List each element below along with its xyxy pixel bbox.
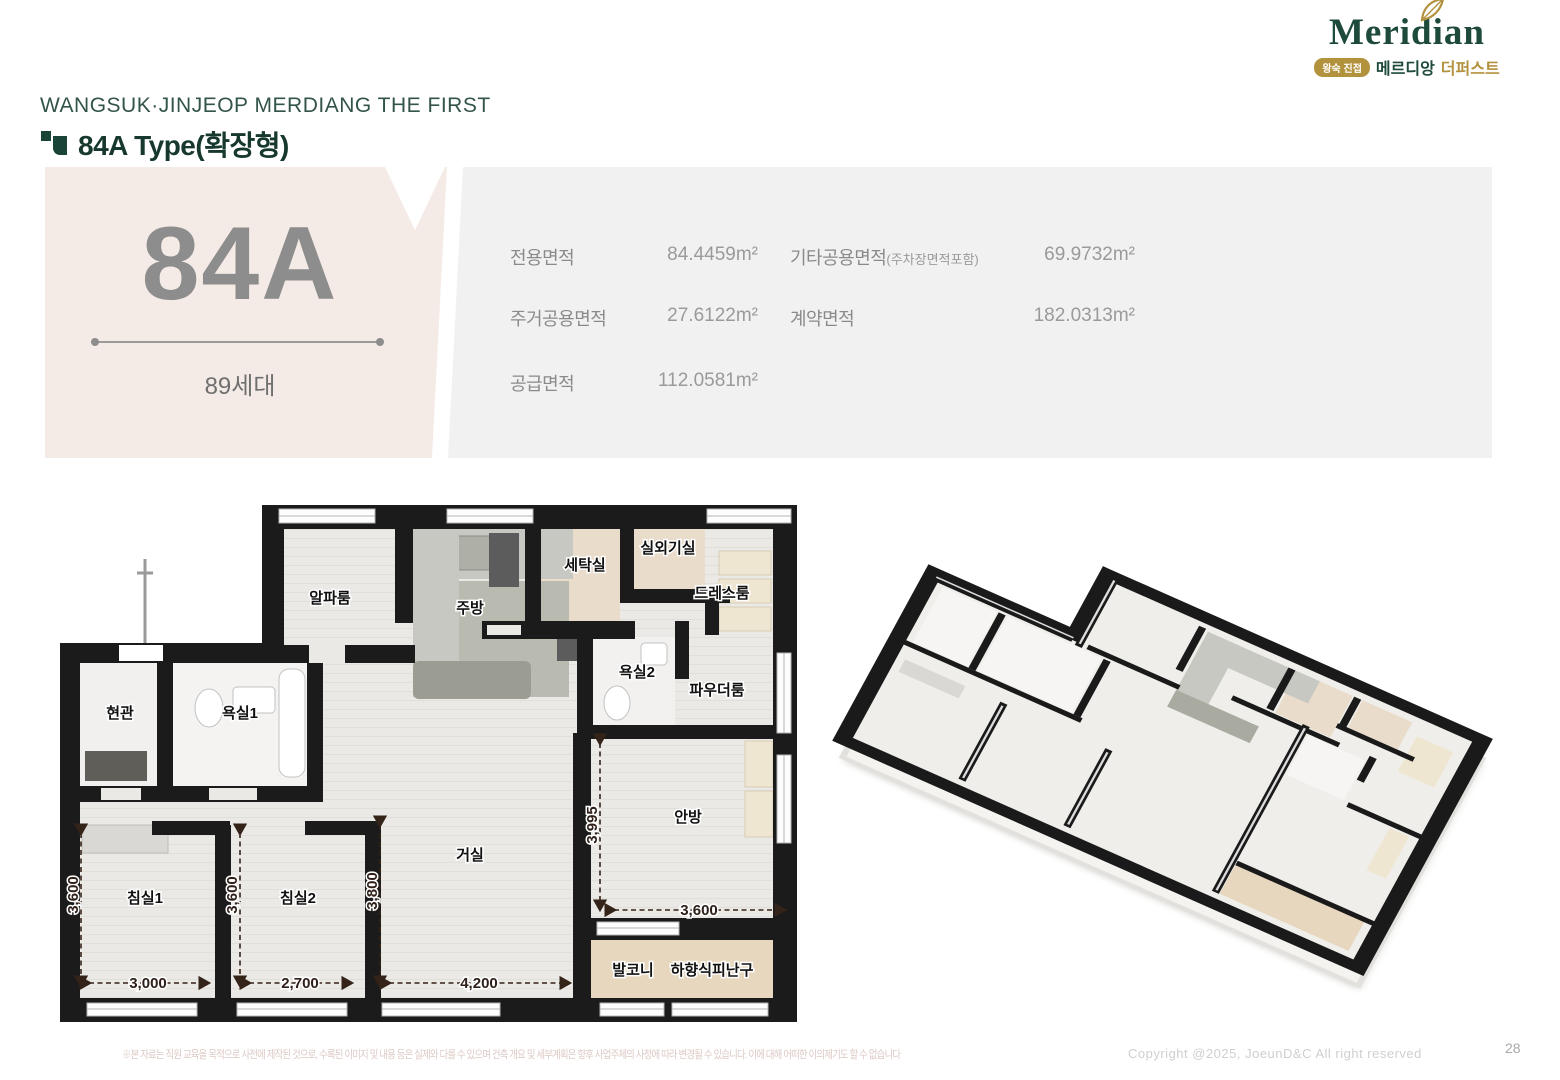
divider-rule <box>95 341 380 343</box>
area-label: 주거공용면적 <box>510 305 606 331</box>
dim-master-width: 3,600 <box>680 902 718 919</box>
floorplan-3d <box>805 480 1525 1055</box>
area-value: 69.9732m² <box>1044 244 1135 266</box>
room-label-entrance: 현관 <box>106 705 134 722</box>
kitchen-island <box>413 661 531 699</box>
area-label: 공급면적 <box>510 370 574 396</box>
room-label-kitchen: 주방 <box>456 599 484 617</box>
household-count: 89세대 <box>45 366 435 401</box>
entrance-mat <box>85 751 147 781</box>
master-wardrobe <box>745 741 773 787</box>
outdoor-unit-floor <box>634 529 705 591</box>
dressroom-shelf <box>719 551 771 575</box>
room-label-laundry: 세탁실 <box>564 556 605 574</box>
area-value: 182.0313m² <box>1034 305 1135 327</box>
area-label: 전용면적 <box>510 244 574 270</box>
room-label-master-bedroom: 안방 <box>674 808 702 826</box>
area-row: 주거공용면적 27.6122m² <box>510 305 758 331</box>
toilet-icon <box>195 689 223 727</box>
room-label-bedroom1: 침실1 <box>127 890 163 907</box>
dim-bedroom1-width: 3,000 <box>129 975 167 992</box>
room-label-balcony: 발코니 <box>612 962 653 979</box>
dim-bedroom1-depth: 3,600 <box>65 876 82 914</box>
room-label-bath1: 욕실1 <box>222 705 258 722</box>
dim-living-depth: 3,800 <box>364 872 381 910</box>
room-label-outdoor-unit: 실외기실 <box>640 539 695 557</box>
floorplan-2d: 현관 욕실1 알파룸 주방 세탁실 실외기실 드레스룸 욕실2 파우더룸 거실 … <box>57 503 802 1025</box>
room-label-bath2: 욕실2 <box>619 664 655 681</box>
room-label-bedroom2: 침실2 <box>280 890 316 907</box>
area-row: 계약면적 182.0313m² <box>790 305 1135 331</box>
master-wardrobe <box>745 791 773 837</box>
room-label-dress-room: 드레스룸 <box>694 585 749 602</box>
entry-door-opening <box>119 645 163 661</box>
page-number: 28 <box>1505 1040 1521 1056</box>
room-label-escape-hatch: 하향식피난구 <box>671 962 754 979</box>
brochure-page: WANGSUK·JINJEOP MERDIANG THE FIRST 84A T… <box>0 0 1560 1080</box>
room-label-alpha-room: 알파룸 <box>309 590 351 607</box>
area-value: 27.6122m² <box>667 305 758 327</box>
copyright-text: Copyright @2025, JoeunD&C All right rese… <box>1128 1046 1422 1061</box>
room-label-powder-room: 파우더룸 <box>689 682 744 699</box>
area-label: 기타공용면적 <box>790 244 886 270</box>
unit-type-code: 84A <box>45 212 435 316</box>
bathtub-icon <box>279 669 305 777</box>
area-row: 기타공용면적(주차장면적포함) 69.9732m² <box>790 244 1135 270</box>
area-sublabel: (주차장면적포함) <box>886 249 978 268</box>
area-value: 112.0581m² <box>658 370 758 392</box>
dim-bedroom2-depth: 3,600 <box>224 876 241 914</box>
dim-living-width: 4,200 <box>460 975 498 992</box>
area-value: 84.4459m² <box>667 244 758 266</box>
area-row: 전용면적 84.4459m² <box>510 244 758 270</box>
area-label: 계약면적 <box>790 305 854 331</box>
appliance <box>489 533 519 587</box>
dressroom-shelf <box>719 607 771 631</box>
area-row: 공급면적 112.0581m² <box>510 370 758 396</box>
disclaimer-text: ※본 자료는 직원 교육을 목적으로 사전에 제작된 것으로, 수록된 이미지 … <box>122 1046 900 1062</box>
room-label-living-room: 거실 <box>456 847 484 864</box>
toilet-icon <box>604 686 630 720</box>
dim-master-depth: 3,995 <box>584 806 601 844</box>
dim-bedroom2-width: 2,700 <box>281 975 319 992</box>
sink-icon <box>641 643 667 665</box>
